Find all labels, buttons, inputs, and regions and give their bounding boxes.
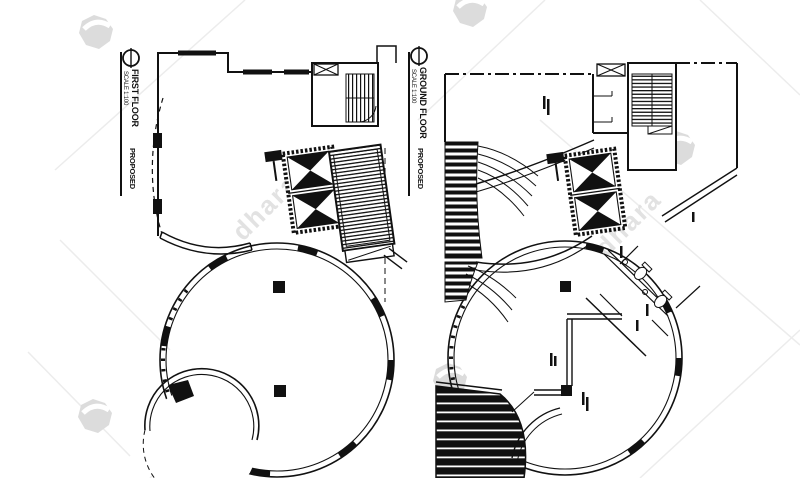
column xyxy=(273,281,285,293)
column xyxy=(274,385,286,397)
basin-fixture xyxy=(623,260,628,265)
first-floor-title-block: FIRST FLOOR SCALE 1:100 PROPOSED xyxy=(121,48,140,196)
column xyxy=(561,385,572,396)
door-leaf xyxy=(593,91,612,122)
ground-floor-title: GROUND FLOOR xyxy=(418,67,428,139)
glazing-band xyxy=(178,53,309,72)
door-swing xyxy=(512,392,534,412)
cube-swoosh-logo-icon xyxy=(79,15,113,49)
ground-floor-plan: GROUND FLOOR SCALE 1:100 PROPOSED xyxy=(409,46,737,478)
ground-floor-elevator-core xyxy=(546,145,625,238)
elevator-cab xyxy=(293,190,339,229)
ground-floor-partitions xyxy=(512,314,622,412)
first-floor-main-hall xyxy=(143,243,394,478)
ground-floor-toilets xyxy=(586,246,700,356)
first-floor-scale: SCALE 1:100 xyxy=(122,71,128,106)
stepped-terrace xyxy=(436,386,526,478)
column xyxy=(560,281,571,292)
first-floor-plan: FIRST FLOOR SCALE 1:100 PROPOSED xyxy=(121,46,408,478)
column xyxy=(153,199,162,214)
elevator-cab xyxy=(569,153,615,192)
room-label-mark xyxy=(543,96,546,109)
ground-floor-title-block: GROUND FLOOR SCALE 1:100 PROPOSED xyxy=(409,46,428,196)
ground-floor-scale: SCALE 1:100 xyxy=(410,69,416,104)
duct xyxy=(264,150,282,162)
cube-swoosh-logo-icon xyxy=(453,0,487,27)
duct xyxy=(546,152,564,164)
small-rotunda-mask xyxy=(143,388,257,478)
cube-swoosh-logo-icon xyxy=(78,399,112,433)
ground-floor-status: PROPOSED xyxy=(416,148,425,190)
elevator-cab xyxy=(575,192,621,231)
drawing-sheet: dhara dhara FIRST FLOOR SCALE 1:100 PROP… xyxy=(0,0,800,478)
first-floor-status: PROPOSED xyxy=(128,148,137,190)
column xyxy=(153,133,162,148)
first-floor-title: FIRST FLOOR xyxy=(130,69,140,127)
first-floor-staircase xyxy=(312,63,378,126)
elevator-cab xyxy=(287,151,333,190)
step-band xyxy=(445,142,482,258)
first-floor-escalator xyxy=(329,143,408,276)
room-label-mark xyxy=(547,99,550,115)
floor-plan-drawing: dhara dhara FIRST FLOOR SCALE 1:100 PROP… xyxy=(0,0,800,478)
